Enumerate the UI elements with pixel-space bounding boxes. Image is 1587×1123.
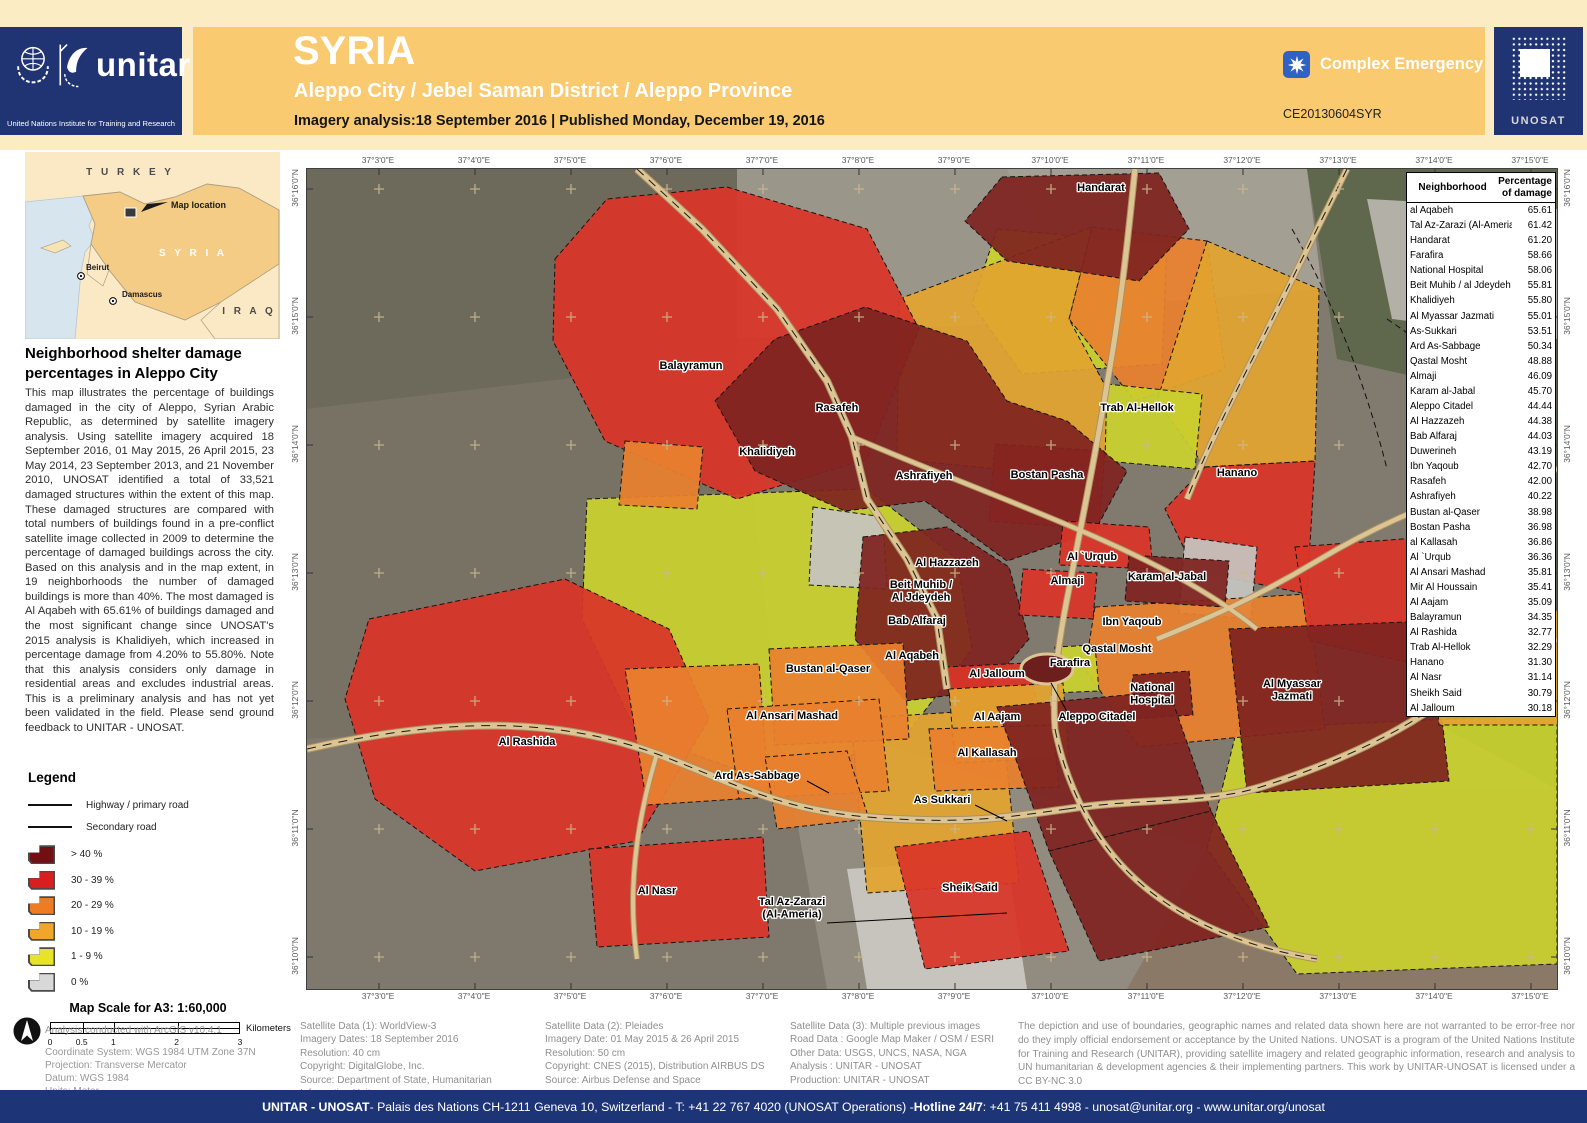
graticule-coordinate-label: 37°10'0"E [1031, 155, 1068, 165]
graticule-coordinate-label: 37°14'0"E [1415, 991, 1452, 1001]
graticule-coordinate-label: 37°8'0"E [842, 991, 875, 1001]
neighborhood-label: Al Ansari Mashad [746, 710, 838, 722]
footer-bar: UNITAR - UNOSAT - Palais des Nations CH-… [0, 1090, 1587, 1123]
footnote-line: Production: UNITAR - UNOSAT [790, 1074, 1018, 1087]
damage-region [1105, 384, 1202, 469]
table-cell-percentage: 43.19 [1512, 444, 1552, 459]
table-cell-neighborhood: Ashrafiyeh [1410, 489, 1512, 504]
footnote-line: Copyright: DigitalGlobe, Inc. [300, 1060, 538, 1073]
coordinate-line: Datum: WGS 1984 [45, 1072, 256, 1085]
map-svg: HandaratBalayramunRasafehTrab Al-HellokK… [307, 169, 1557, 989]
page: unitar United Nations Institute for Trai… [0, 0, 1587, 1123]
damage-region [589, 837, 769, 947]
neighborhood-label: Bustan al-Qaser [786, 663, 871, 675]
table-cell-percentage: 31.14 [1512, 670, 1552, 685]
unitar-bird-icon [58, 40, 92, 90]
table-cell-neighborhood: Al Rashida [1410, 625, 1512, 640]
table-cell-neighborhood: Qastal Mosht [1410, 354, 1512, 369]
table-cell-percentage: 65.61 [1512, 203, 1552, 218]
table-row: Bustan al-Qaser38.98 [1407, 505, 1555, 520]
table-col-neighborhood: Neighborhood [1410, 182, 1495, 193]
inset-syria-label: S Y R I A [159, 248, 227, 259]
legend-class-label: > 40 % [71, 849, 102, 860]
graticule-coordinate-label: 37°7'0"E [746, 155, 779, 165]
starburst-icon [1283, 51, 1310, 78]
table-cell-neighborhood: Duwerineh [1410, 444, 1512, 459]
neighborhood-label: Aleppo Citadel [1058, 711, 1135, 723]
complex-emergency-badge: Complex Emergency [1283, 51, 1483, 78]
neighborhood-label: Karam al-Jabal [1128, 571, 1206, 583]
graticule-coordinate-label: 37°11'0"E [1128, 991, 1165, 1001]
legend-class-label: 20 - 29 % [71, 900, 114, 911]
table-cell-percentage: 55.81 [1512, 278, 1552, 293]
table-cell-neighborhood: al Kallasah [1410, 535, 1512, 550]
table-row: Ashrafiyeh40.22 [1407, 489, 1555, 504]
damascus-city-dot [112, 300, 114, 302]
neighborhood-label: NationalHospital [1130, 682, 1173, 707]
table-cell-percentage: 31.30 [1512, 655, 1552, 670]
unitar-logo: unitar United Nations Institute for Trai… [0, 27, 182, 135]
neighborhood-label: Al Rashida [499, 736, 557, 748]
footnote-line: Resolution: 40 cm [300, 1047, 538, 1060]
graticule-coordinate-label: 37°12'0"E [1223, 155, 1260, 165]
table-cell-percentage: 34.35 [1512, 610, 1552, 625]
footnote-line: Satellite Data (2): Pleiades [545, 1020, 783, 1033]
graticule-coordinate-label: 36°16'0"N [290, 169, 300, 207]
graticule-coordinate-label: 37°4'0"E [458, 991, 491, 1001]
graticule-coordinate-label: 37°6'0"E [650, 155, 683, 165]
graticule-coordinate-label: 36°12'0"N [290, 681, 300, 719]
footnote-line: Analysis : UNITAR - UNOSAT [790, 1060, 1018, 1073]
table-cell-neighborhood: Al Nasr [1410, 670, 1512, 685]
table-cell-percentage: 44.38 [1512, 414, 1552, 429]
neighborhood-label: Ashrafiyeh [896, 470, 953, 482]
legend-road-row: Secondary road [28, 816, 189, 838]
legend-title: Legend [28, 770, 76, 785]
graticule-coordinate-label: 37°10'0"E [1031, 991, 1068, 1001]
legend-class-row: 0 % [28, 970, 114, 996]
legend-swatch [28, 922, 55, 941]
table-cell-neighborhood: Trab Al-Hellok [1410, 640, 1512, 655]
damage-table-body: al Aqabeh65.61Tal Az-Zarazi (Al-Ameria)6… [1407, 203, 1555, 716]
table-row: Al Rashida32.77 [1407, 625, 1555, 640]
neighborhood-label: Al Nasr [638, 885, 677, 897]
scale-unit-label: Kilometers [246, 1023, 291, 1034]
table-row: Balayramun34.35 [1407, 610, 1555, 625]
table-row: Karam al-Jabal45.70 [1407, 384, 1555, 399]
graticule-coordinate-label: 37°3'0"E [362, 991, 395, 1001]
table-row: Sheikh Said30.79 [1407, 686, 1555, 701]
table-cell-neighborhood: Bab Alfaraj [1410, 429, 1512, 444]
table-row: As-Sukkari53.51 [1407, 324, 1555, 339]
table-cell-neighborhood: Sheikh Said [1410, 686, 1512, 701]
map-location-marker [125, 208, 136, 217]
disclaimer-text: The depiction and use of boundaries, geo… [1018, 1020, 1575, 1089]
footnote-line: Satellite Data (3): Multiple previous im… [790, 1020, 1018, 1033]
table-row: Qastal Mosht48.88 [1407, 354, 1555, 369]
table-cell-neighborhood: Al `Urqub [1410, 550, 1512, 565]
table-cell-percentage: 36.98 [1512, 520, 1552, 535]
neighborhood-label: Al Hazzazeh [915, 557, 979, 569]
legend-class-label: 1 - 9 % [71, 951, 103, 962]
inset-damascus-label: Damascus [122, 290, 163, 299]
legend-road-label: Secondary road [86, 822, 157, 833]
table-row: National Hospital58.06 [1407, 263, 1555, 278]
neighborhood-label: Ibn Yaqoub [1102, 616, 1161, 628]
legend-swatch [28, 896, 55, 915]
inset-iraq-label: I R A Q [222, 306, 276, 317]
graticule-coordinate-label: 36°15'0"N [290, 297, 300, 335]
unosat-logo-text: UNOSAT [1494, 115, 1583, 127]
table-cell-percentage: 35.81 [1512, 565, 1552, 580]
table-cell-neighborhood: Al Ansari Mashad [1410, 565, 1512, 580]
legend-class-row: 10 - 19 % [28, 919, 114, 945]
neighborhood-label: As Sukkari [914, 794, 971, 806]
graticule-coordinate-label: 37°8'0"E [842, 155, 875, 165]
table-row: Khalidiyeh55.80 [1407, 293, 1555, 308]
footer-bold-text: UNITAR - UNOSAT [262, 1100, 369, 1114]
neighborhood-label: Khalidiyeh [739, 446, 795, 458]
neighborhood-label: Almaji [1050, 575, 1083, 587]
graticule-coordinate-label: 36°10'0"N [1562, 937, 1572, 975]
table-row: Beit Muhib / al Jdeydeh55.81 [1407, 278, 1555, 293]
coordinate-line: Coordinate System: WGS 1984 UTM Zone 37N [45, 1046, 256, 1059]
table-row: Mir Al Houssain35.41 [1407, 580, 1555, 595]
neighborhood-label: Al Jalloum [969, 668, 1025, 680]
satellite-data-2: Satellite Data (2): PleiadesImagery Date… [545, 1020, 783, 1087]
table-row: Al `Urqub36.36 [1407, 550, 1555, 565]
graticule-coordinate-label: 36°14'0"N [290, 425, 300, 463]
table-cell-percentage: 38.98 [1512, 505, 1552, 520]
neighborhood-label: Balayramun [660, 360, 723, 372]
inset-map: T U R K E Y S Y R I A I R A Q Map locati… [25, 152, 280, 339]
graticule-coordinate-label: 36°14'0"N [1562, 425, 1572, 463]
table-row: Al Jalloum30.18 [1407, 701, 1555, 716]
table-row: Duwerineh43.19 [1407, 444, 1555, 459]
footnote-line: Copyright: CNES (2015), Distribution AIR… [545, 1060, 783, 1073]
legend-class-label: 10 - 19 % [71, 926, 114, 937]
graticule-coordinate-label: 36°11'0"N [290, 809, 300, 846]
table-cell-percentage: 46.09 [1512, 369, 1552, 384]
neighborhood-label: Al Kallasah [957, 747, 1017, 759]
sidebar-heading: Neighborhood shelter damage percentages … [25, 344, 275, 383]
map-subtitle: Aleppo City / Jebel Saman District / Ale… [294, 80, 792, 103]
neighborhood-label: Ard As-Sabbage [714, 770, 799, 782]
table-row: Ibn Yaqoub42.70 [1407, 459, 1555, 474]
table-row: Bab Alfaraj44.03 [1407, 429, 1555, 444]
neighborhood-label: Bab Alfaraj [888, 615, 946, 627]
table-cell-neighborhood: Al Aajam [1410, 595, 1512, 610]
map-title: SYRIA [293, 29, 415, 74]
legend-class-row: > 40 % [28, 842, 114, 868]
table-cell-neighborhood: Karam al-Jabal [1410, 384, 1512, 399]
damage-region [619, 441, 703, 509]
table-cell-percentage: 35.09 [1512, 595, 1552, 610]
table-cell-neighborhood: Handarat [1410, 233, 1512, 248]
table-row: Aleppo Citadel44.44 [1407, 399, 1555, 414]
table-row: Almaji46.09 [1407, 369, 1555, 384]
table-row: al Aqabeh65.61 [1407, 203, 1555, 218]
neighborhood-label: Al `Urqub [1067, 551, 1117, 563]
legend-class-row: 20 - 29 % [28, 893, 114, 919]
table-cell-percentage: 50.34 [1512, 339, 1552, 354]
graticule-coordinate-label: 36°13'0"N [290, 553, 300, 591]
legend-road-row: Highway / primary road [28, 794, 189, 816]
footnote-line: Satellite Data (1): WorldView-3 [300, 1020, 538, 1033]
legend-road-label: Highway / primary road [86, 800, 189, 811]
footnote-line: Imagery Dates: 18 September 2016 [300, 1033, 538, 1046]
damage-table-header: Neighborhood Percentage of damage [1407, 173, 1555, 203]
header-band: unitar United Nations Institute for Trai… [0, 0, 1587, 150]
graticule-coordinate-label: 36°11'0"N [1562, 809, 1572, 846]
table-cell-percentage: 44.44 [1512, 399, 1552, 414]
table-row: Hanano31.30 [1407, 655, 1555, 670]
footer-bold-text: Hotline 24/7 [914, 1100, 983, 1114]
neighborhood-label: Sheik Said [942, 882, 998, 894]
table-cell-percentage: 32.77 [1512, 625, 1552, 640]
table-cell-percentage: 40.22 [1512, 489, 1552, 504]
table-cell-percentage: 61.42 [1512, 218, 1552, 233]
scale-title: Map Scale for A3: 1:60,000 [28, 1001, 268, 1015]
unitar-logo-row: unitar [8, 39, 191, 91]
neighborhood-label: Tal Az-Zarazi(Al-Ameria) [759, 896, 826, 921]
graticule-coordinate-label: 37°14'0"E [1415, 155, 1452, 165]
map-location-label: Map location [171, 200, 226, 210]
table-cell-neighborhood: Balayramun [1410, 610, 1512, 625]
table-cell-neighborhood: Bustan al-Qaser [1410, 505, 1512, 520]
table-cell-percentage: 42.70 [1512, 459, 1552, 474]
graticule-coordinate-label: 37°12'0"E [1223, 991, 1260, 1001]
graticule-coordinate-label: 37°6'0"E [650, 991, 683, 1001]
table-col-percentage: Percentage of damage [1495, 176, 1552, 199]
highway-line-swatch [28, 804, 72, 807]
table-cell-percentage: 55.80 [1512, 293, 1552, 308]
table-cell-neighborhood: Al Jalloum [1410, 701, 1512, 716]
table-cell-percentage: 58.06 [1512, 263, 1552, 278]
legend-swatch [28, 947, 55, 966]
neighborhood-label: Hanano [1217, 467, 1258, 479]
table-cell-neighborhood: Aleppo Citadel [1410, 399, 1512, 414]
neighborhood-label: Bostan Pasha [1011, 469, 1085, 481]
footnote-line: Imagery Date: 01 May 2015 & 26 April 201… [545, 1033, 783, 1046]
footer-text: : +41 75 411 4998 - unosat@unitar.org - … [983, 1100, 1325, 1114]
table-cell-percentage: 61.20 [1512, 233, 1552, 248]
legend-roads: Highway / primary road Secondary road [28, 794, 189, 838]
table-row: Al Ansari Mashad35.81 [1407, 565, 1555, 580]
table-cell-percentage: 36.36 [1512, 550, 1552, 565]
neighborhood-label: Al Aajam [974, 711, 1021, 723]
unitar-wordmark: unitar [96, 46, 191, 84]
graticule-coordinate-label: 37°13'0"E [1319, 155, 1356, 165]
neighborhood-label: Handarat [1077, 182, 1125, 194]
table-row: Al Hazzazeh44.38 [1407, 414, 1555, 429]
table-row: Bostan Pasha36.98 [1407, 520, 1555, 535]
table-cell-neighborhood: Rasafeh [1410, 474, 1512, 489]
graticule-coordinate-label: 37°4'0"E [458, 155, 491, 165]
table-cell-neighborhood: Ibn Yaqoub [1410, 459, 1512, 474]
analysis-note: Analysis conducted with ArcGIS v10.4.1 [45, 1024, 222, 1037]
table-cell-percentage: 48.88 [1512, 354, 1552, 369]
neighborhood-label: Rasafeh [816, 402, 859, 414]
legend-class-row: 30 - 39 % [28, 868, 114, 894]
table-cell-neighborhood: Mir Al Houssain [1410, 580, 1512, 595]
satellite-data-3: Satellite Data (3): Multiple previous im… [790, 1020, 1018, 1087]
neighborhood-label: Beit Muhib /Al Jdeydeh [890, 579, 952, 604]
analysis-line: Imagery analysis:18 September 2016 | Pub… [294, 113, 825, 129]
graticule-coordinate-label: 37°13'0"E [1319, 991, 1356, 1001]
table-row: Handarat61.20 [1407, 233, 1555, 248]
table-cell-neighborhood: Ard As-Sabbage [1410, 339, 1512, 354]
beirut-city-dot [80, 275, 82, 277]
ce-number: CE20130604SYR [1283, 107, 1382, 121]
table-row: Trab Al-Hellok32.29 [1407, 640, 1555, 655]
table-cell-neighborhood: Farafira [1410, 248, 1512, 263]
table-cell-percentage: 53.51 [1512, 324, 1552, 339]
graticule-coordinate-label: 37°5'0"E [554, 155, 587, 165]
graticule-coordinate-label: 36°16'0"N [1562, 169, 1572, 207]
graticule-coordinate-label: 37°9'0"E [938, 155, 971, 165]
un-emblem-icon [8, 39, 58, 91]
table-cell-neighborhood: al Aqabeh [1410, 203, 1512, 218]
unosat-logo-blob [1520, 49, 1550, 77]
graticule-coordinate-label: 37°5'0"E [554, 991, 587, 1001]
table-cell-neighborhood: Hanano [1410, 655, 1512, 670]
graticule-coordinate-label: 37°7'0"E [746, 991, 779, 1001]
legend-class-label: 0 % [71, 977, 88, 988]
legend-classes: > 40 %30 - 39 %20 - 29 %10 - 19 %1 - 9 %… [28, 842, 114, 995]
graticule-coordinate-label: 36°15'0"N [1562, 297, 1572, 335]
footnote-line: Road Data : Google Map Maker / OSM / ESR… [790, 1033, 1018, 1046]
legend-swatch [28, 871, 55, 890]
table-row: Al Aajam35.09 [1407, 595, 1555, 610]
table-cell-neighborhood: Al Hazzazeh [1410, 414, 1512, 429]
table-cell-neighborhood: Al Myassar Jazmati [1410, 309, 1512, 324]
table-cell-neighborhood: National Hospital [1410, 263, 1512, 278]
table-row: Rasafeh42.00 [1407, 474, 1555, 489]
legend-swatch [28, 845, 55, 864]
legend-class-row: 1 - 9 % [28, 944, 114, 970]
sidebar: T U R K E Y S Y R I A I R A Q Map locati… [0, 150, 293, 1090]
secondary-line-swatch [28, 826, 72, 827]
table-row: Tal Az-Zarazi (Al-Ameria)61.42 [1407, 218, 1555, 233]
title-band: SYRIA Aleppo City / Jebel Saman District… [193, 27, 1485, 135]
table-row: Farafira58.66 [1407, 248, 1555, 263]
table-cell-neighborhood: Almaji [1410, 369, 1512, 384]
footer-text: - Palais des Nations CH-1211 Geneva 10, … [370, 1100, 914, 1114]
damage-table: Neighborhood Percentage of damage al Aqa… [1406, 172, 1556, 717]
coordinate-line: Projection: Transverse Mercator [45, 1059, 256, 1072]
graticule-coordinate-label: 36°13'0"N [1562, 553, 1572, 591]
neighborhood-label: Farafira [1050, 657, 1091, 669]
inset-turkey-label: T U R K E Y [86, 167, 174, 178]
neighborhood-label: Al Aqabeh [885, 650, 939, 662]
table-cell-neighborhood: Tal Az-Zarazi (Al-Ameria) [1410, 218, 1512, 233]
inset-beirut-label: Beirut [86, 263, 109, 272]
legend-swatch [28, 973, 55, 992]
table-cell-percentage: 44.03 [1512, 429, 1552, 444]
table-cell-percentage: 35.41 [1512, 580, 1552, 595]
graticule-coordinate-label: 37°15'0"E [1511, 991, 1548, 1001]
table-cell-percentage: 32.29 [1512, 640, 1552, 655]
description-paragraph: This map illustrates the percentage of b… [25, 386, 274, 736]
table-cell-percentage: 36.86 [1512, 535, 1552, 550]
graticule-coordinate-label: 37°11'0"E [1128, 155, 1165, 165]
graticule-coordinate-label: 36°12'0"N [1562, 681, 1572, 719]
table-cell-percentage: 45.70 [1512, 384, 1552, 399]
unosat-logo: UNOSAT [1494, 27, 1583, 135]
table-cell-neighborhood: Khalidiyeh [1410, 293, 1512, 308]
graticule-coordinate-label: 37°3'0"E [362, 155, 395, 165]
legend-class-label: 30 - 39 % [71, 875, 114, 886]
graticule-coordinate-label: 36°10'0"N [290, 937, 300, 975]
footnote-line: Source: Airbus Defense and Space [545, 1074, 783, 1087]
neighborhood-label: Trab Al-Hellok [1100, 402, 1174, 414]
table-cell-neighborhood: Beit Muhib / al Jdeydeh [1410, 278, 1512, 293]
map-canvas: HandaratBalayramunRasafehTrab Al-HellokK… [306, 168, 1558, 990]
complex-emergency-label: Complex Emergency [1320, 55, 1483, 74]
table-cell-percentage: 42.00 [1512, 474, 1552, 489]
table-cell-neighborhood: As-Sukkari [1410, 324, 1512, 339]
neighborhood-label: Qastal Mosht [1082, 643, 1151, 655]
table-row: al Kallasah36.86 [1407, 535, 1555, 550]
graticule-coordinate-label: 37°15'0"E [1511, 155, 1548, 165]
table-cell-percentage: 30.18 [1512, 701, 1552, 716]
table-row: Al Nasr31.14 [1407, 670, 1555, 685]
footnote-line: Other Data: USGS, UNCS, NASA, NGA [790, 1047, 1018, 1060]
table-cell-neighborhood: Bostan Pasha [1410, 520, 1512, 535]
table-row: Al Myassar Jazmati55.01 [1407, 309, 1555, 324]
table-row: Ard As-Sabbage50.34 [1407, 339, 1555, 354]
table-cell-percentage: 58.66 [1512, 248, 1552, 263]
unitar-caption: United Nations Institute for Training an… [0, 119, 182, 128]
footnote-line: Resolution: 50 cm [545, 1047, 783, 1060]
graticule-coordinate-label: 37°9'0"E [938, 991, 971, 1001]
table-cell-percentage: 55.01 [1512, 309, 1552, 324]
table-cell-percentage: 30.79 [1512, 686, 1552, 701]
